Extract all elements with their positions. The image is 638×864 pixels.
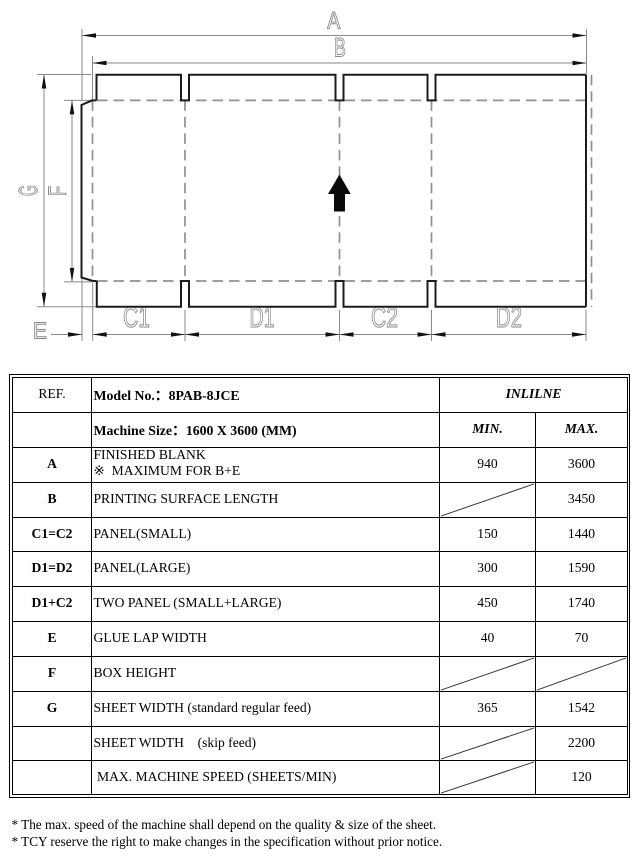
svg-text:A: A	[327, 8, 340, 35]
svg-text:B: B	[334, 32, 346, 62]
svg-text:E: E	[33, 318, 47, 344]
svg-text:G: G	[13, 185, 43, 196]
svg-text:F: F	[44, 186, 72, 196]
